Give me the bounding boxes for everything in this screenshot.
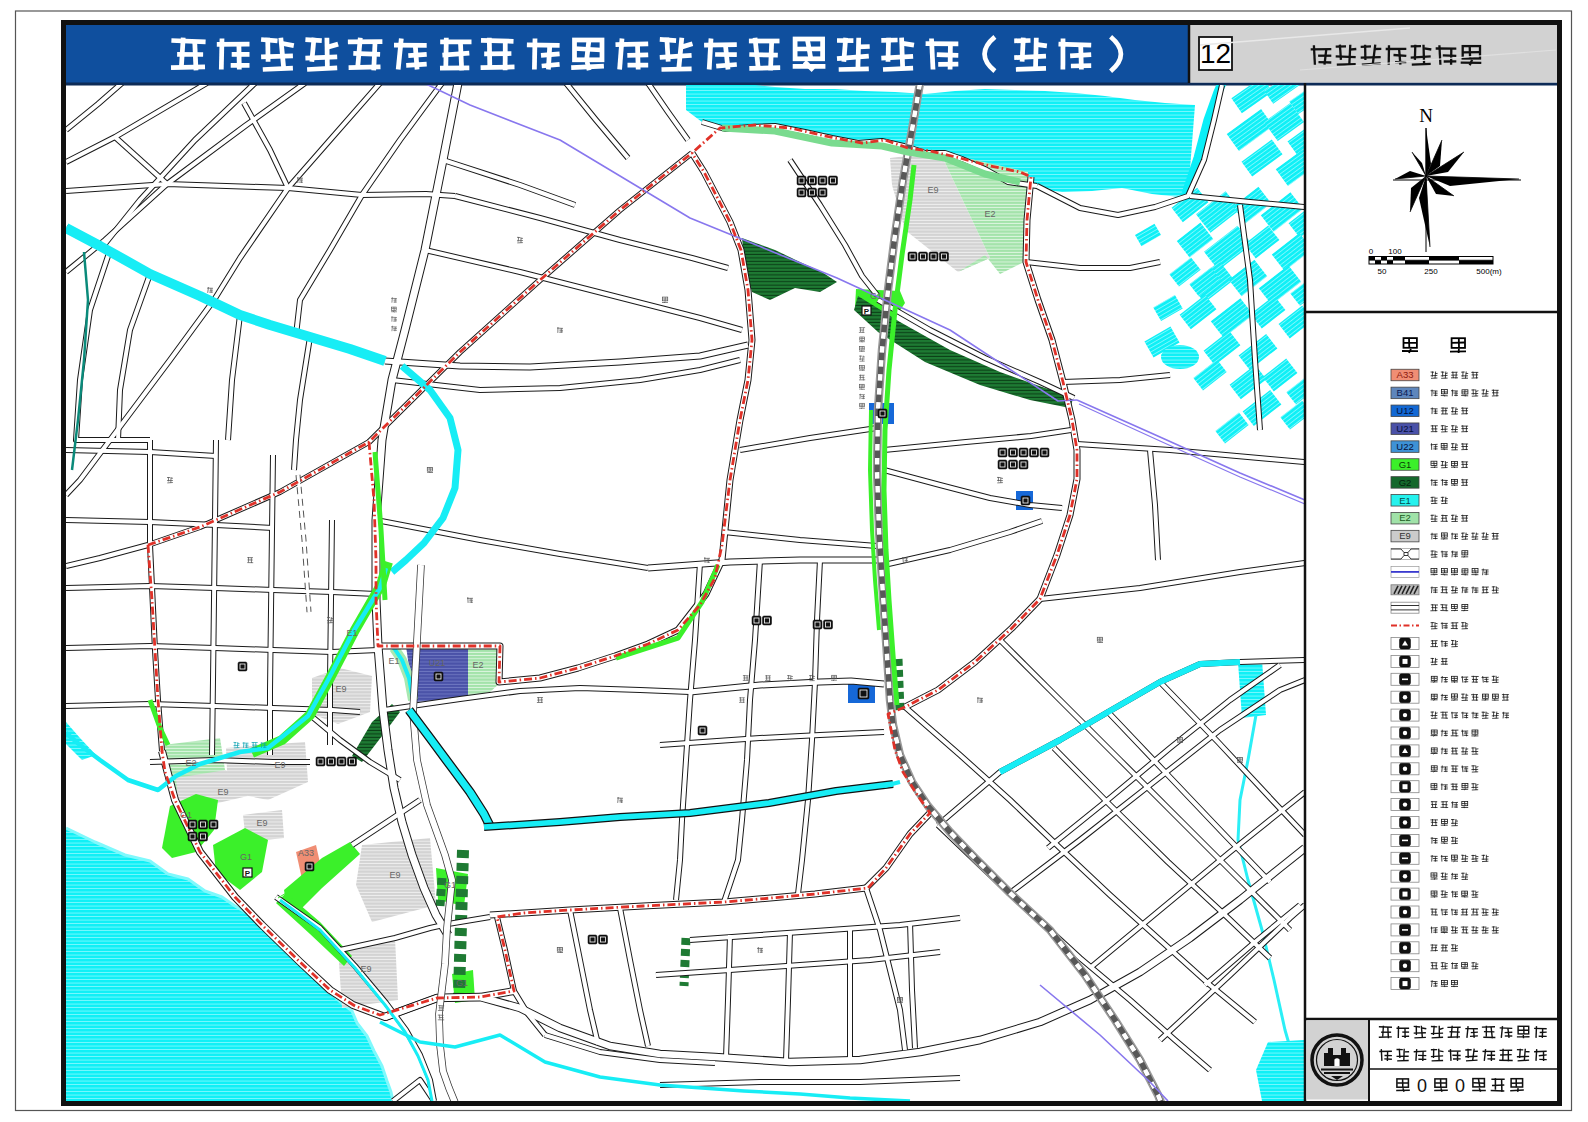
svg-text:E9: E9 bbox=[360, 964, 371, 974]
svg-text:G1: G1 bbox=[240, 852, 252, 862]
svg-text:U21: U21 bbox=[429, 658, 446, 668]
svg-text:E9: E9 bbox=[1399, 530, 1411, 541]
svg-text:E1: E1 bbox=[346, 628, 357, 638]
svg-text:A33: A33 bbox=[298, 848, 314, 858]
svg-text:G1: G1 bbox=[180, 810, 192, 820]
svg-text:0: 0 bbox=[1417, 1076, 1427, 1096]
svg-text:U22: U22 bbox=[1396, 441, 1413, 452]
svg-text:250: 250 bbox=[1424, 267, 1438, 276]
svg-text:E9: E9 bbox=[274, 760, 285, 770]
svg-text:E9: E9 bbox=[335, 684, 346, 694]
svg-text:E2: E2 bbox=[1399, 512, 1411, 523]
svg-text:G1: G1 bbox=[444, 880, 456, 890]
svg-text:E9: E9 bbox=[217, 787, 228, 797]
svg-text:E2: E2 bbox=[984, 209, 995, 219]
svg-text:100: 100 bbox=[1388, 247, 1402, 256]
svg-text:G1: G1 bbox=[870, 291, 882, 301]
svg-text:E1: E1 bbox=[388, 656, 399, 666]
svg-text:E9: E9 bbox=[256, 818, 267, 828]
svg-text:B41: B41 bbox=[1397, 387, 1414, 398]
svg-text:G2: G2 bbox=[1399, 477, 1412, 488]
svg-text:0: 0 bbox=[1369, 247, 1374, 256]
svg-text:0: 0 bbox=[1455, 1076, 1465, 1096]
svg-text:E9: E9 bbox=[927, 185, 938, 195]
svg-text:U21: U21 bbox=[1396, 423, 1413, 434]
svg-text:U12: U12 bbox=[1396, 405, 1413, 416]
svg-text:500(m): 500(m) bbox=[1476, 267, 1502, 276]
svg-text:E2: E2 bbox=[185, 758, 196, 768]
svg-text:N: N bbox=[1419, 105, 1433, 126]
svg-text:G1: G1 bbox=[456, 978, 468, 988]
svg-text:G1: G1 bbox=[1399, 459, 1412, 470]
svg-text:E2: E2 bbox=[472, 660, 483, 670]
svg-text:A33: A33 bbox=[1397, 369, 1414, 380]
svg-text:E9: E9 bbox=[389, 870, 400, 880]
svg-text:P: P bbox=[864, 307, 870, 316]
svg-text:E1: E1 bbox=[1399, 495, 1411, 506]
svg-text:P: P bbox=[245, 869, 251, 878]
svg-text:50: 50 bbox=[1378, 267, 1387, 276]
